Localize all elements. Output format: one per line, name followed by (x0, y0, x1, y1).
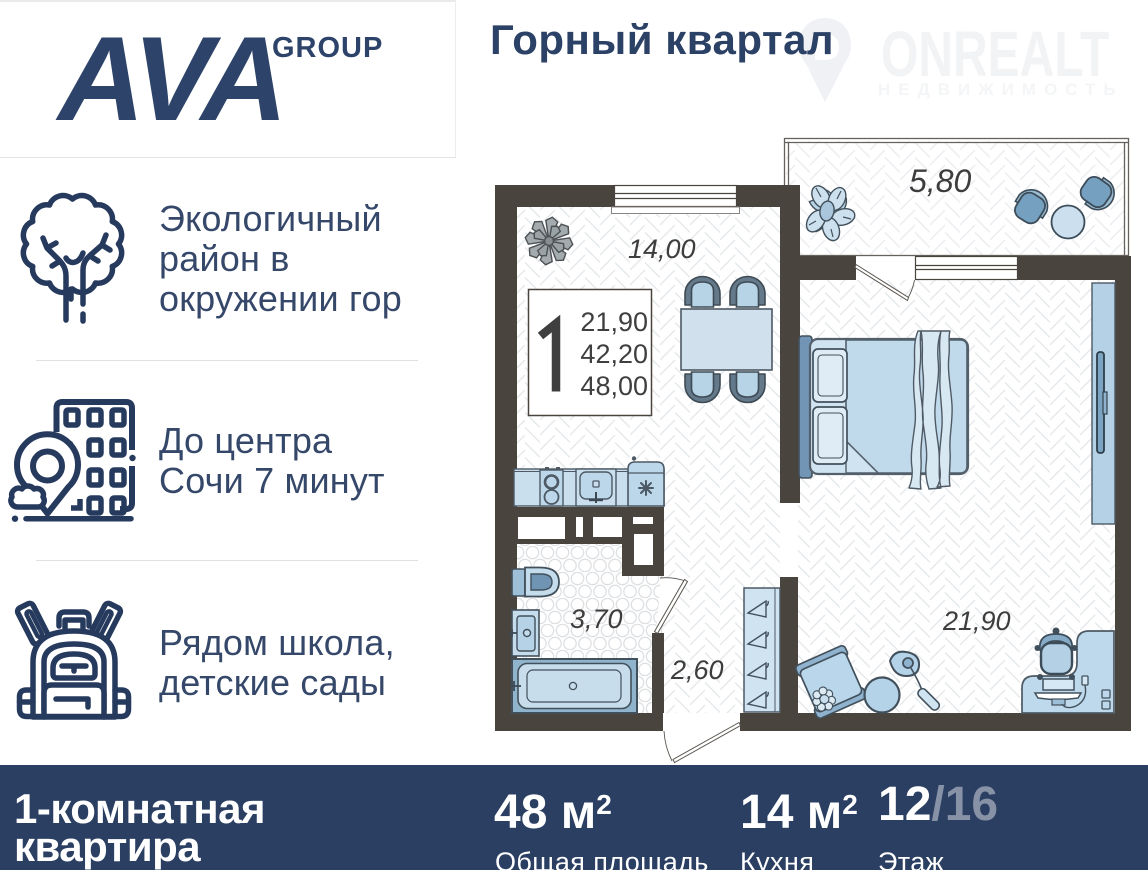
svg-text:14,00: 14,00 (628, 234, 696, 264)
svg-text:48,00: 48,00 (580, 371, 648, 401)
svg-text:21,90: 21,90 (580, 307, 648, 337)
svg-text:2,60: 2,60 (670, 655, 724, 685)
svg-text:21,90: 21,90 (942, 606, 1011, 636)
svg-text:42,20: 42,20 (580, 339, 648, 369)
svg-text:5,80: 5,80 (909, 163, 971, 199)
svg-text:3,70: 3,70 (570, 604, 623, 634)
